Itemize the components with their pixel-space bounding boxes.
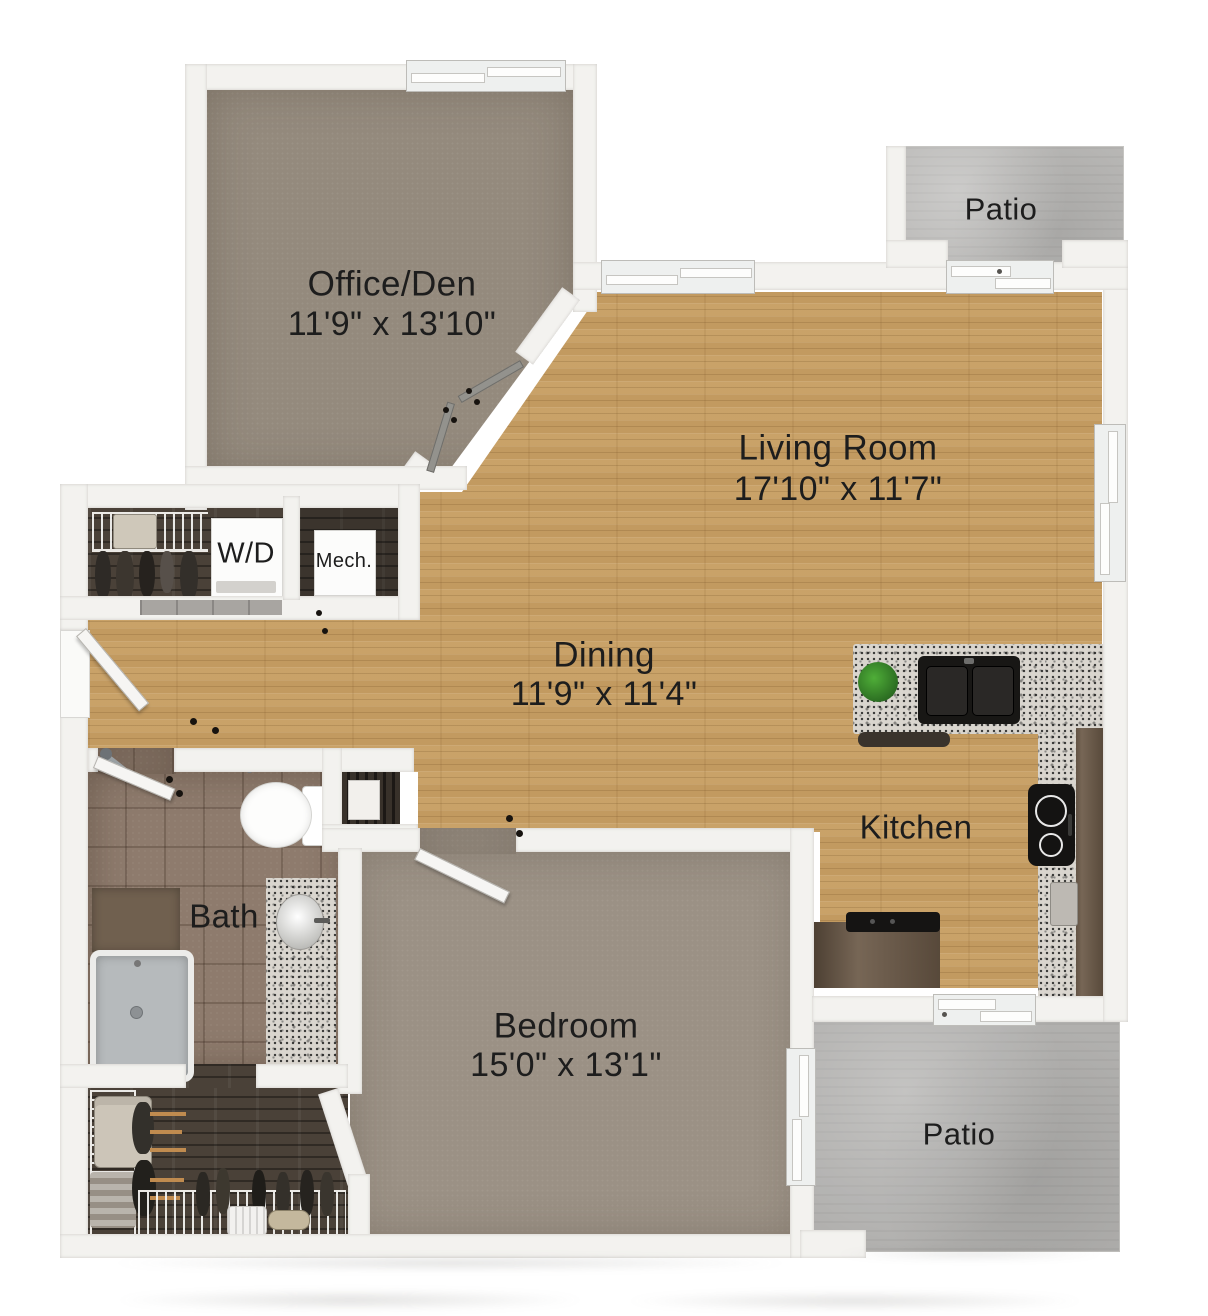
bathtub [90,950,194,1082]
wall [60,1234,820,1258]
slider-panel [995,278,1051,289]
living-room-dimensions: 17'10" x 11'7" [734,472,942,506]
door-knob [466,388,472,394]
shadow [620,1292,1090,1310]
bath-label: Bath [189,900,259,933]
slider-handle [997,269,1002,274]
dishwasher [1050,882,1078,926]
patio-sliding-door [946,260,1054,294]
sink-basin-left [926,666,968,716]
wall [174,748,414,772]
closet-storage-box [113,514,157,549]
bath-bench [92,888,180,952]
storage-bag [268,1210,310,1230]
office-den-dimensions: 11'9" x 13'10" [288,307,496,341]
floor-plan: Office/Den 11'9" x 13'10" Living Room 17… [0,0,1208,1316]
door-stop [506,815,513,822]
bedroom-window [786,1048,816,1186]
folded-blanket [90,1172,136,1228]
stove-cooktop [1028,784,1075,866]
patio-bottom-label: Patio [923,1119,996,1150]
island-cooktop-bar [846,912,940,932]
hanging-clothes [196,1172,210,1216]
wall [185,64,207,510]
clothes-hanger [150,1178,184,1182]
hanging-clothes [139,551,155,597]
bar-stool [858,732,950,747]
wall [283,496,300,600]
sink-basin-right [972,666,1014,716]
office-den-label: Office/Den [308,267,477,302]
door-stop [176,790,183,797]
office-window [406,60,566,92]
clothes-hanger [150,1112,186,1116]
window-sash [799,1055,809,1117]
door-stop [166,776,173,783]
window-sash [1108,431,1118,503]
door-stop [516,830,523,837]
wall [398,484,420,620]
tub-drain [130,1006,143,1019]
dining-dimensions: 11'9" x 11'4" [511,677,698,711]
clothes-hanger [150,1148,186,1152]
hanging-clothes [180,551,198,601]
plant [858,662,898,702]
bedroom-label: Bedroom [494,1009,639,1044]
patio-top-label: Patio [965,194,1038,225]
wall [1103,262,1128,1022]
sink-faucet [964,658,974,664]
door-knob [474,399,480,405]
kitchen-label: Kitchen [860,811,973,844]
door-knob [443,407,449,413]
wall [790,828,814,1258]
sink-faucet [314,918,330,923]
burner-large [1035,795,1067,827]
wall [812,996,935,1022]
hanging-clothes [132,1102,154,1154]
bedroom-dimensions: 15'0" x 13'1" [470,1048,662,1082]
window-sash [680,268,752,278]
clothes-hanger [150,1130,182,1134]
tub-faucet [134,960,141,967]
shadow [100,1256,800,1270]
wall [338,848,362,1094]
door-stop [322,628,328,634]
window-sash [411,73,485,83]
shadow [110,1290,590,1310]
wall [322,828,420,852]
bath-closet-doorway [186,1064,256,1088]
window-sash [487,67,561,77]
door-stop [316,610,322,616]
hanging-clothes [320,1172,334,1216]
closet-door-track [140,600,282,615]
hanging-clothes [160,551,174,593]
living-room-label: Living Room [739,431,938,466]
wall [60,1064,186,1088]
slider-panel [938,999,996,1010]
wall [60,484,420,508]
hanging-clothes [95,551,111,599]
laundry-basket [227,1206,267,1236]
island-knob [890,919,895,924]
living-room-window [601,260,755,294]
kitchen-sink [918,656,1020,724]
slider-panel [951,266,1011,277]
bedroom-doorway-threshold [420,828,516,854]
washer-door-front [216,581,276,593]
kitchen-patio-sliding-door [933,994,1036,1026]
stove-knobs [1068,814,1072,836]
island-knob [870,919,875,924]
window-sash [606,275,678,285]
linen-closet-shelf-box [348,780,380,820]
window-sash [1100,503,1110,575]
wall [256,1064,348,1088]
mech-label: Mech. [316,551,372,571]
wall [1062,240,1128,268]
shadow [830,1248,1110,1260]
dining-label: Dining [553,638,655,673]
door-stop [190,718,197,725]
slider-panel [980,1011,1032,1022]
washer-dryer-label: W/D [217,540,275,569]
burner-small [1039,833,1063,857]
slider-handle [942,1012,947,1017]
wall [60,716,88,1258]
door-knob [451,417,457,423]
wall [516,828,812,852]
toilet-bowl [240,782,312,848]
window-sash [792,1119,802,1181]
wall [886,240,948,268]
living-room-side-window [1094,424,1126,582]
door-stop [212,727,219,734]
